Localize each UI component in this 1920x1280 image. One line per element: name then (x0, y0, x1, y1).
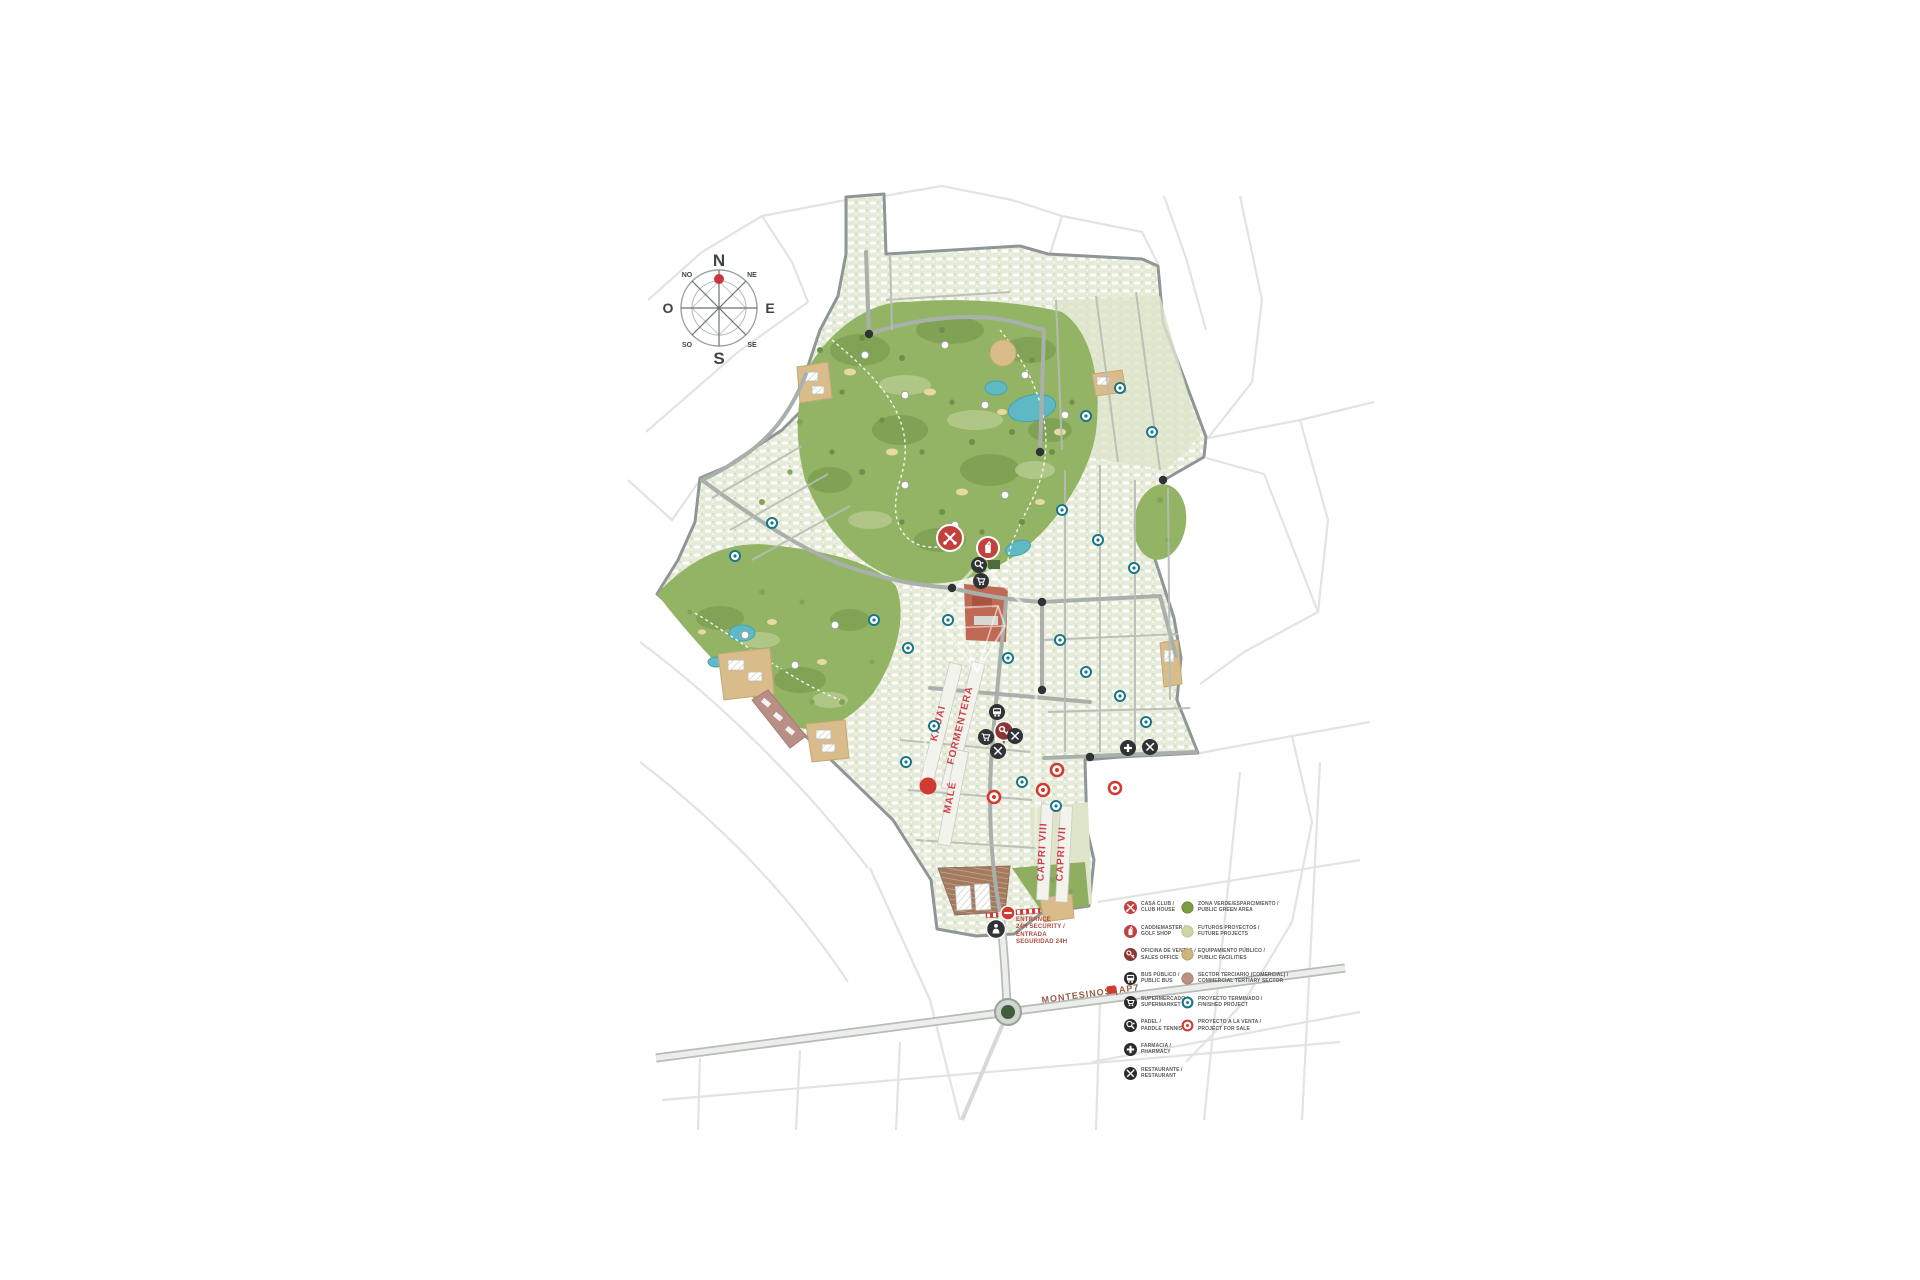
legend-item-commercial-tertiary-sector: SECTOR TERCIARIO (COMERCIAL) / COMMERCIA… (1181, 972, 1311, 996)
supermarket-icon (973, 573, 989, 589)
legend-label-en: FUTURE PROJECTS (1198, 931, 1248, 937)
restaurant-icon (1124, 1067, 1137, 1080)
entrance-note-line: ENTRADA (1016, 932, 1067, 939)
legend-label-es: PROYECTO TERMINADO / (1198, 996, 1262, 1002)
restaurant-icon (1142, 739, 1158, 755)
compass-s-label: S (713, 349, 724, 368)
compass-se-label: SE (747, 342, 757, 349)
compass-o-label: O (663, 300, 674, 316)
legend-label-en: PHARMACY (1141, 1049, 1171, 1055)
legend-label-es: ZONA VERDE/ESPARCIMIENTO / (1198, 901, 1279, 907)
restaurant-icon (1007, 728, 1023, 744)
legend-label-es: RESTAURANTE / (1141, 1067, 1183, 1073)
legend-item-restaurant: RESTAURANTE / RESTAURANT (1124, 1067, 1224, 1091)
round-plaza (990, 340, 1016, 366)
legend-label-es: CASA CLUB / (1141, 901, 1174, 907)
compass-north-dot (714, 274, 724, 284)
legend-zones-column: ZONA VERDE/ESPARCIMIENTO / PUBLIC GREEN … (1181, 901, 1311, 1043)
club-house-icon (1124, 901, 1137, 914)
compass-no-label: NO (682, 272, 693, 279)
golf-shop-icon (1124, 925, 1137, 938)
compass-so-label: SO (682, 342, 693, 349)
commercial-tertiary-swatch (1181, 972, 1194, 985)
pharmacy-icon (1120, 740, 1136, 756)
paddle-tennis-icon (971, 557, 987, 573)
legend-label-es: PROYECTO A LA VENTA / (1198, 1019, 1261, 1025)
legend-label-en: CLUB HOUSE (1141, 907, 1175, 913)
public-bus-icon (989, 704, 1005, 720)
supermarket-icon (1124, 996, 1137, 1009)
legend-label-en: PROJECT FOR SALE (1198, 1026, 1250, 1032)
entrance-note: ENTRANCE 24h SECURITY / ENTRADA SEGURIDA… (1016, 917, 1067, 947)
ap7-shield-icon (1106, 985, 1116, 994)
legend-label-es: BUS PÚBLICO / (1141, 972, 1180, 978)
entrance-barrier (986, 913, 998, 918)
legend-label-es: EQUIPAMIENTO PÚBLICO / (1198, 948, 1265, 954)
legend-label-en: SALES OFFICE (1141, 955, 1179, 961)
restaurant-icon (990, 743, 1006, 759)
legend-label-es: CADDIEMASTER / (1141, 925, 1185, 931)
compass-e-label: E (765, 300, 774, 316)
legend-item-pharmacy: FARMACIA / PHARMACY (1124, 1043, 1224, 1067)
sales-location-dot (920, 778, 937, 795)
supermarket-icon (978, 729, 994, 745)
roundabout (995, 999, 1021, 1025)
legend-label-es: FUTUROS PROYECTOS / (1198, 925, 1260, 931)
masterplan-area: KAUAI FORMENTERA MALÉ CAPRI VIII CAPRI V… (657, 194, 1206, 936)
masterplan-map: KAUAI FORMENTERA MALÉ CAPRI VIII CAPRI V… (0, 0, 1920, 1280)
legend-label-es: PADEL / (1141, 1019, 1161, 1025)
entrance-gate-icon (1001, 906, 1015, 920)
entrance-note-line: 24h SECURITY / (1016, 924, 1067, 931)
legend-label-en: RESTAURANT (1141, 1073, 1176, 1079)
paddle-tennis-icon (1124, 1019, 1137, 1032)
legend-label-en: COMMERCIAL TERTIARY SECTOR (1198, 978, 1283, 984)
legend-item-public-facilities: EQUIPAMIENTO PÚBLICO / PUBLIC FACILITIES (1181, 948, 1311, 972)
pharmacy-icon (1124, 1043, 1137, 1056)
club-house-icon (937, 525, 963, 551)
legend-label-en: PUBLIC BUS (1141, 978, 1173, 984)
compass-n-label: N (713, 251, 725, 270)
legend-label-en: FINISHED PROJECT (1198, 1002, 1248, 1008)
legend-item-project-for-sale: PROYECTO A LA VENTA / PROJECT FOR SALE (1181, 1019, 1311, 1043)
public-bus-icon (1124, 972, 1137, 985)
masterplan-page: KAUAI FORMENTERA MALÉ CAPRI VIII CAPRI V… (0, 0, 1920, 1280)
legend-label-en: PUBLIC FACILITIES (1198, 955, 1247, 961)
project-for-sale-swatch (1181, 1019, 1194, 1032)
public-green-area-swatch (1181, 901, 1194, 914)
public-facilities-swatch (1181, 948, 1194, 961)
legend-label-es: FARMACIA / (1141, 1043, 1171, 1049)
legend-label-en: PUBLIC GREEN AREA (1198, 907, 1253, 913)
finished-project-swatch (1181, 996, 1194, 1009)
sales-office-icon (1124, 948, 1137, 961)
entrance-note-line: ENTRANCE (1016, 917, 1067, 924)
legend-label-en: GOLF SHOP (1141, 931, 1171, 937)
compass-ne-label: NE (747, 272, 757, 279)
security-guard-icon (987, 920, 1006, 939)
legend-label-es: SECTOR TERCIARIO (COMERCIAL) / (1198, 972, 1288, 978)
entrance-note-line: SEGURIDAD 24H (1016, 939, 1067, 946)
legend-label-en: SUPERMARKET (1141, 1002, 1181, 1008)
legend-item-public-green-area: ZONA VERDE/ESPARCIMIENTO / PUBLIC GREEN … (1181, 901, 1311, 925)
future-projects-swatch (1181, 925, 1194, 938)
compass-rose: N S E O NO NE SO SE (663, 251, 775, 368)
legend-label-en: PADDLE TENNIS (1141, 1026, 1182, 1032)
legend-item-finished-project: PROYECTO TERMINADO / FINISHED PROJECT (1181, 996, 1311, 1020)
legend-item-future-projects: FUTUROS PROYECTOS / FUTURE PROJECTS (1181, 925, 1311, 949)
